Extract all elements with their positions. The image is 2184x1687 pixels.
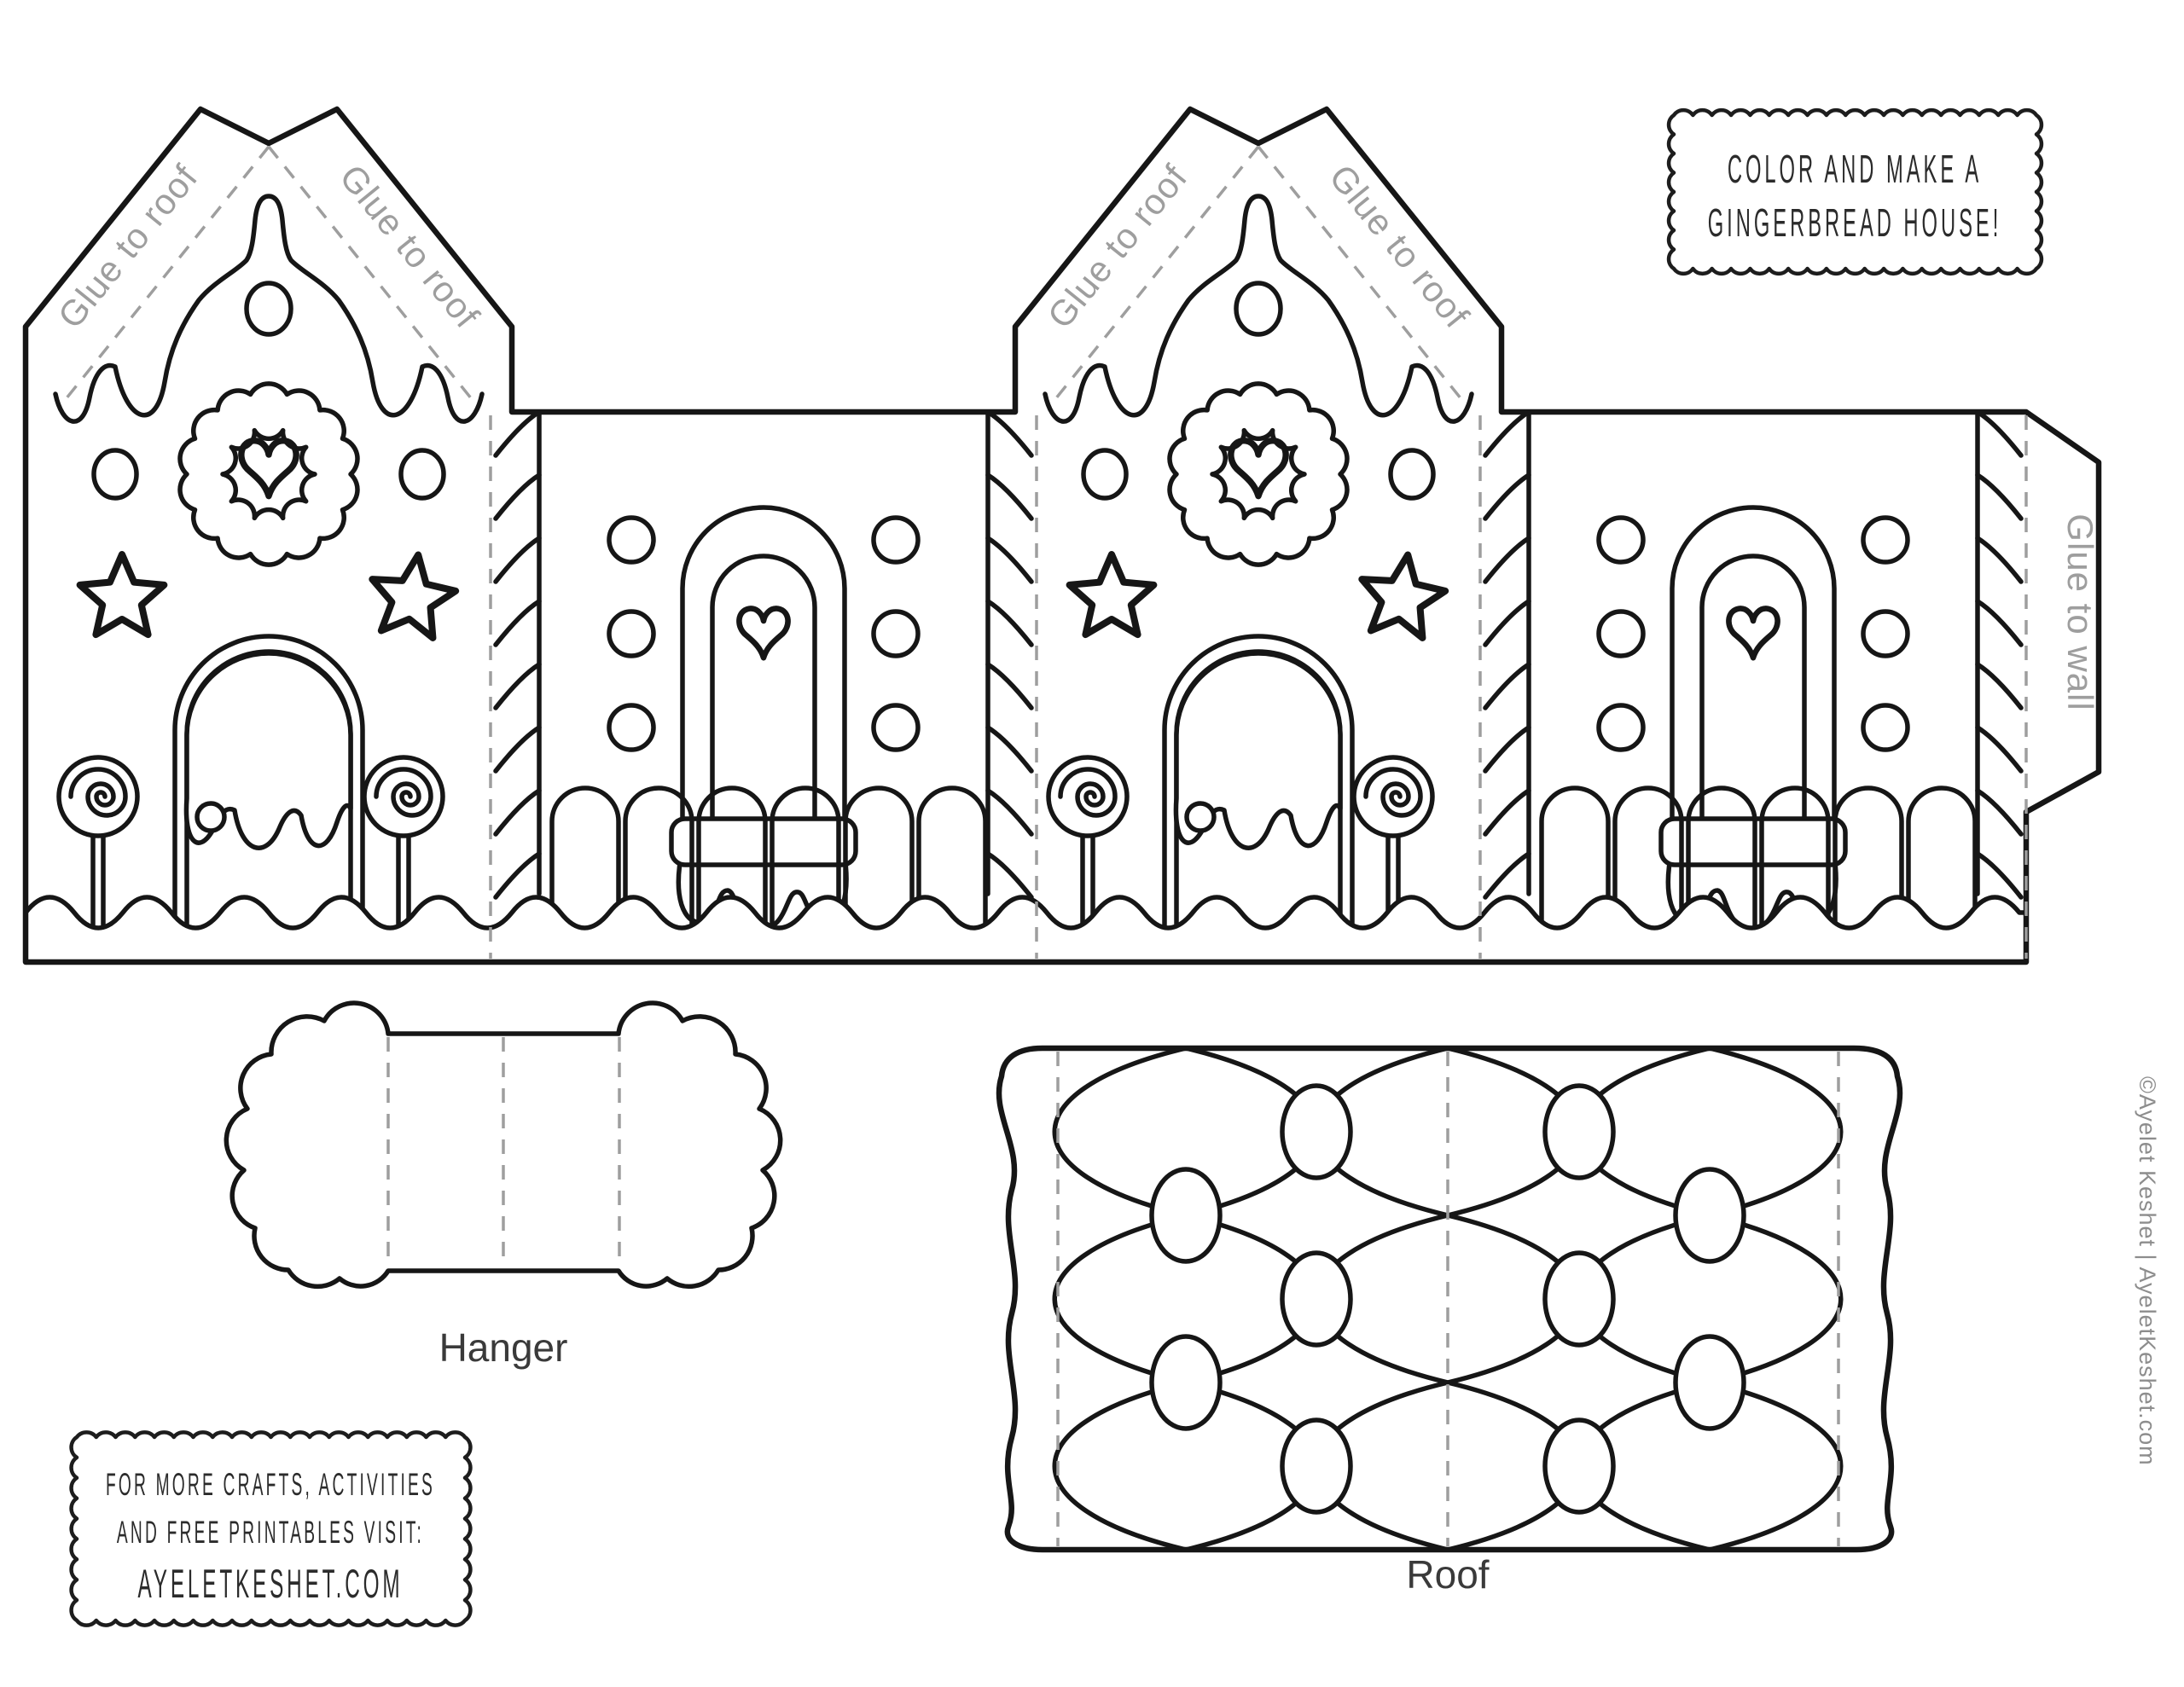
promo-box: FOR MORE CRAFTS, ACTIVITIES AND FREE PRI… (72, 1432, 471, 1625)
title-line-1: COLOR AND MAKE A (1728, 146, 1982, 191)
house-facade-1 (50, 143, 488, 935)
glue-to-wall-label: Glue to wall (2060, 513, 2100, 710)
roof-fold-lines (1058, 1052, 1838, 1546)
wall-section-2 (1485, 412, 2021, 934)
wall-section-1 (496, 412, 1031, 934)
promo-line-1: FOR MORE CRAFTS, ACTIVITIES (106, 1467, 435, 1503)
roof-label: Roof (1406, 1552, 1489, 1597)
printable-template-canvas: Glue to roof Glue to roof (0, 0, 2184, 1687)
title-box: COLOR AND MAKE A GINGERBREAD HOUSE! (1669, 110, 2042, 274)
gingerbread-house-coloring-page: Glue to roof Glue to roof (0, 0, 2184, 1687)
credit-text: ©Ayelet Keshet | AyeletKeshet.com (2135, 1076, 2160, 1466)
promo-line-2: AND FREE PRINTABLES VISIT: (117, 1515, 424, 1551)
title-line-2: GINGERBREAD HOUSE! (1708, 200, 2002, 245)
promo-line-3: AYELETKESHET.COM (138, 1561, 404, 1606)
title-box-scalloped-border (1669, 110, 2042, 274)
roof-outline (999, 1048, 1900, 1550)
hanger-piece: Hanger (226, 1003, 780, 1370)
hanger-fold-lines (388, 1037, 619, 1266)
hanger-label: Hanger (439, 1325, 568, 1370)
roof-piece: Roof (999, 1048, 1900, 1597)
house-facade-2 (1040, 143, 1478, 935)
